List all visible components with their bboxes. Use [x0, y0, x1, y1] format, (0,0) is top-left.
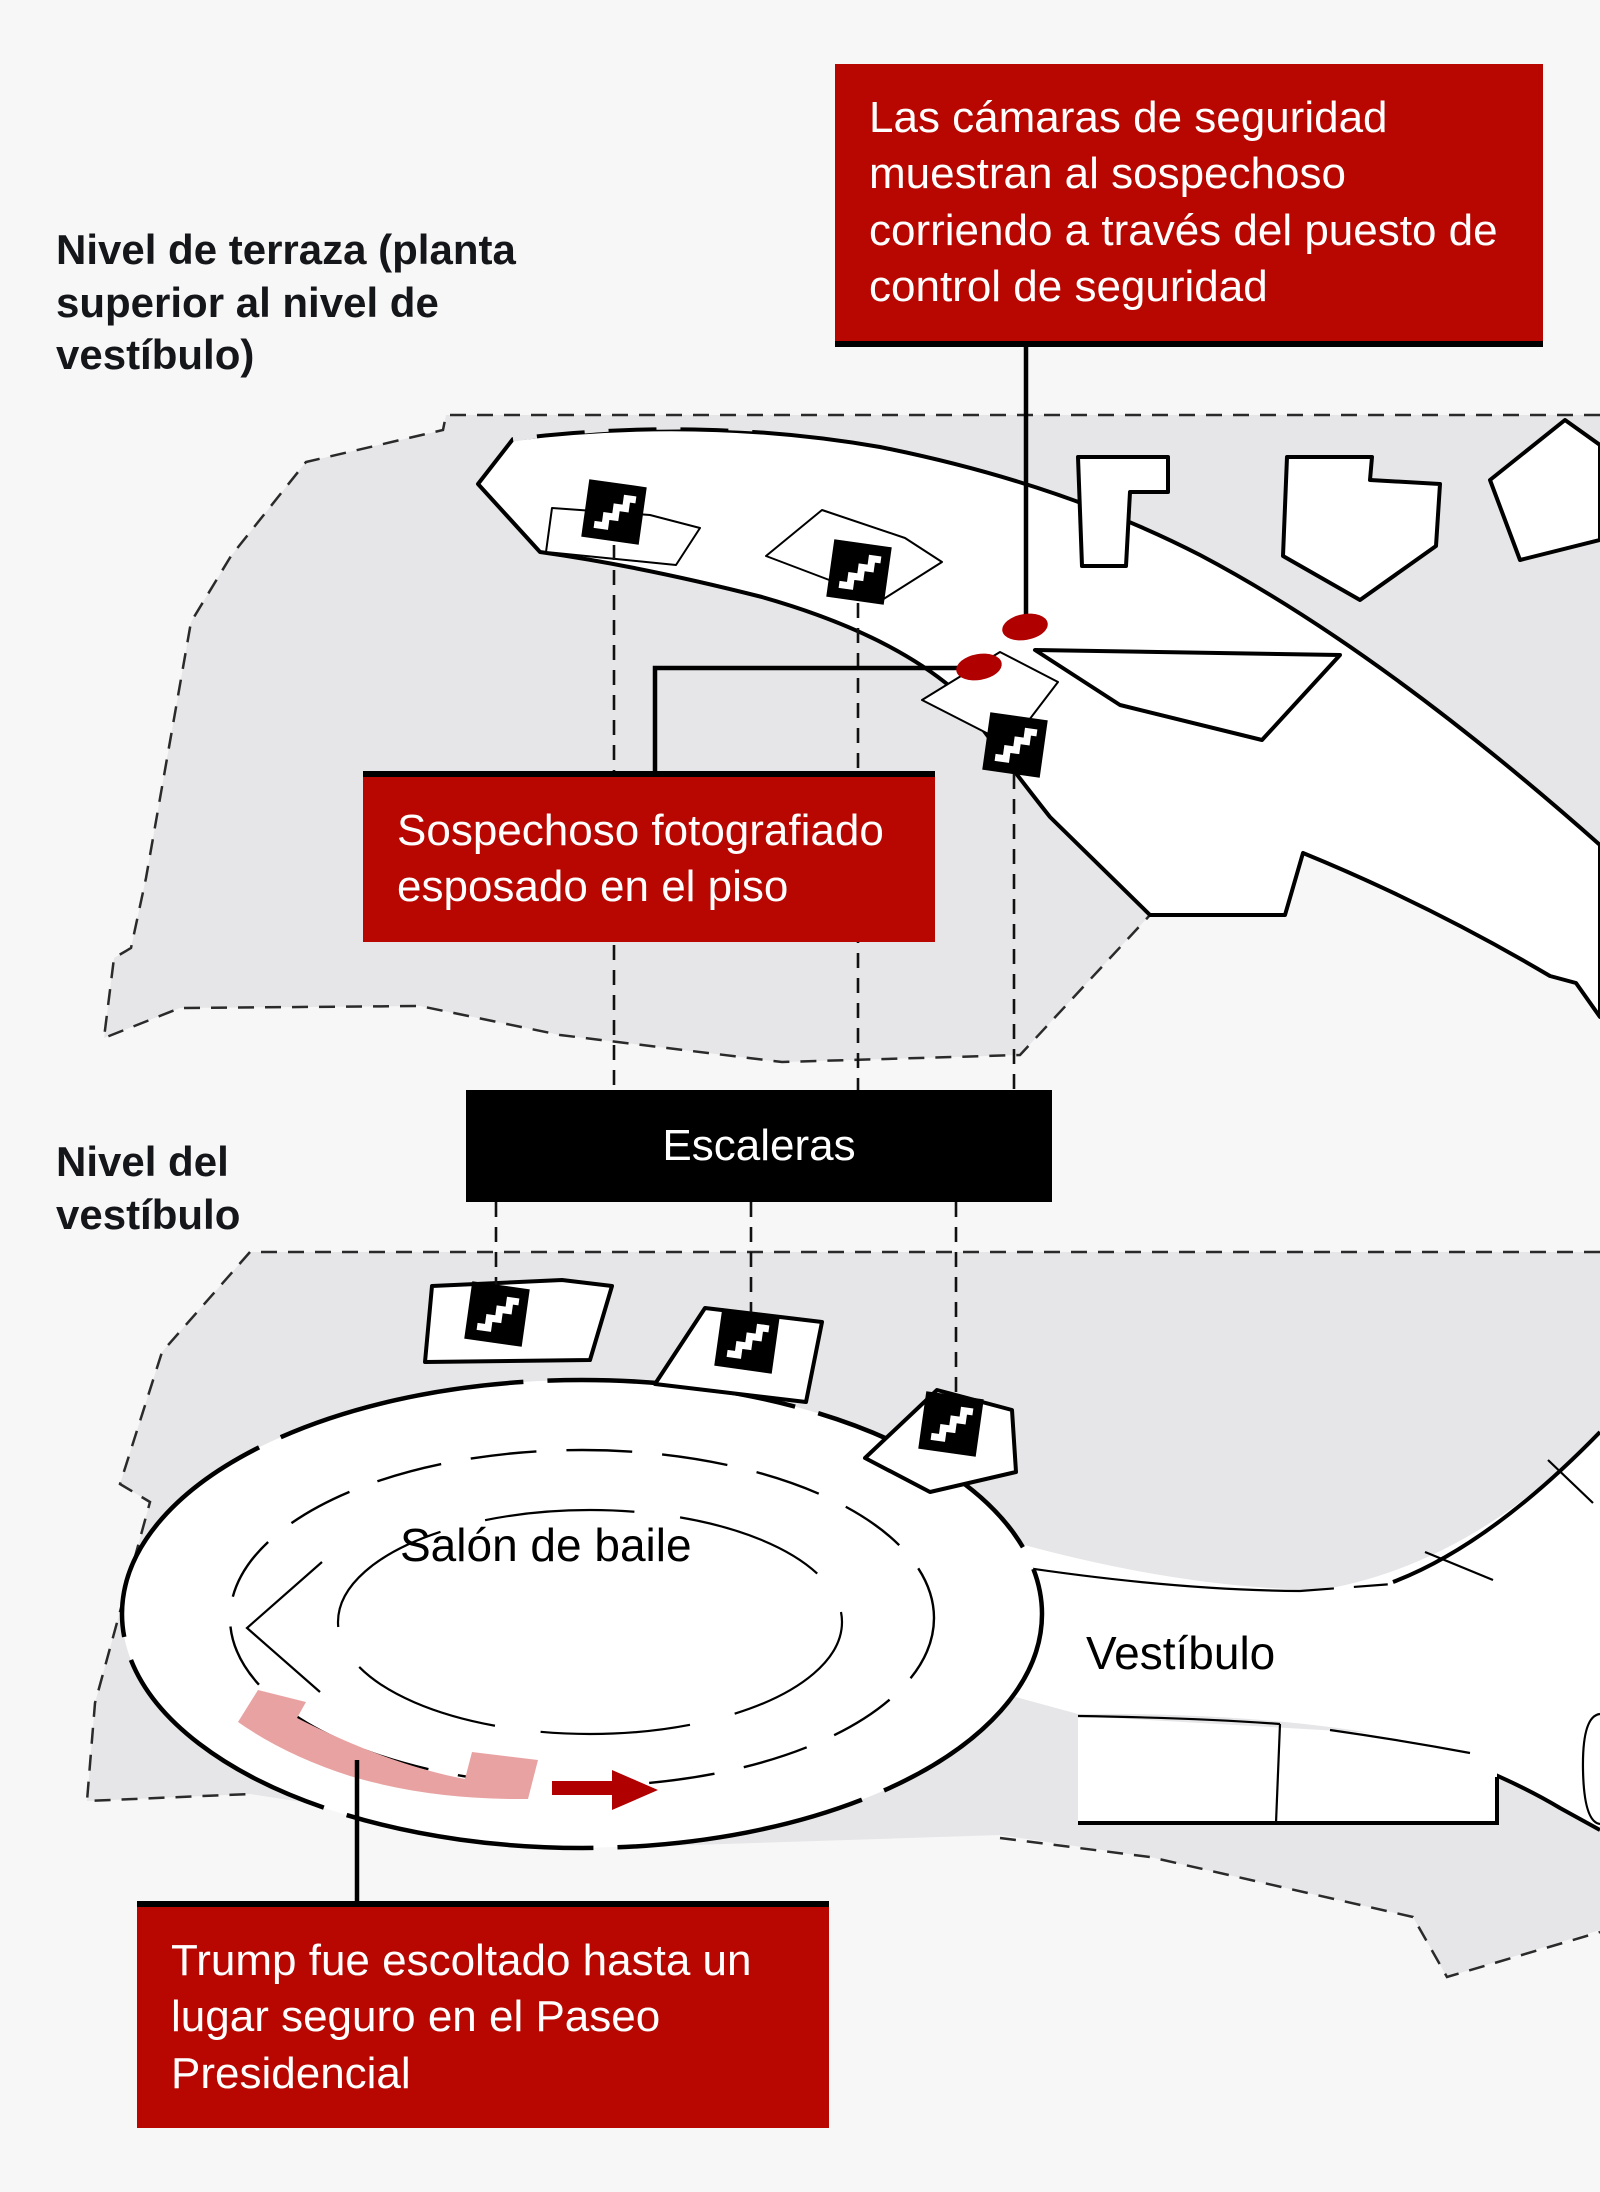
ballroom-label: Salón de baile	[400, 1518, 692, 1572]
stairs-icon	[982, 712, 1048, 778]
stairs-icon	[918, 1391, 984, 1457]
stairs-icon	[464, 1281, 530, 1347]
stairs-icon	[581, 479, 647, 545]
stairs-bar-label: Escaleras	[662, 1121, 855, 1171]
terrace-level-plan	[104, 415, 1600, 1062]
security-callout: Las cámaras de seguridad muestran al sos…	[835, 64, 1543, 347]
corridor-label: Vestíbulo	[1086, 1626, 1275, 1680]
stairs-icon	[714, 1308, 780, 1374]
stairs-icon	[826, 539, 892, 605]
lobby-level-plan	[87, 1252, 1600, 1977]
suspect-callout: Sospechoso fotografiado esposado en el p…	[363, 771, 935, 942]
infographic-canvas: Nivel de terraza (planta superior al niv…	[0, 0, 1600, 2192]
escort-callout: Trump fue escoltado hasta un lugar segur…	[137, 1901, 829, 2128]
stairs-bar: Escaleras	[466, 1090, 1052, 1202]
lobby-level-title: Nivel del vestíbulo	[56, 1136, 306, 1241]
terrace-level-title: Nivel de terraza (planta superior al niv…	[56, 224, 616, 382]
